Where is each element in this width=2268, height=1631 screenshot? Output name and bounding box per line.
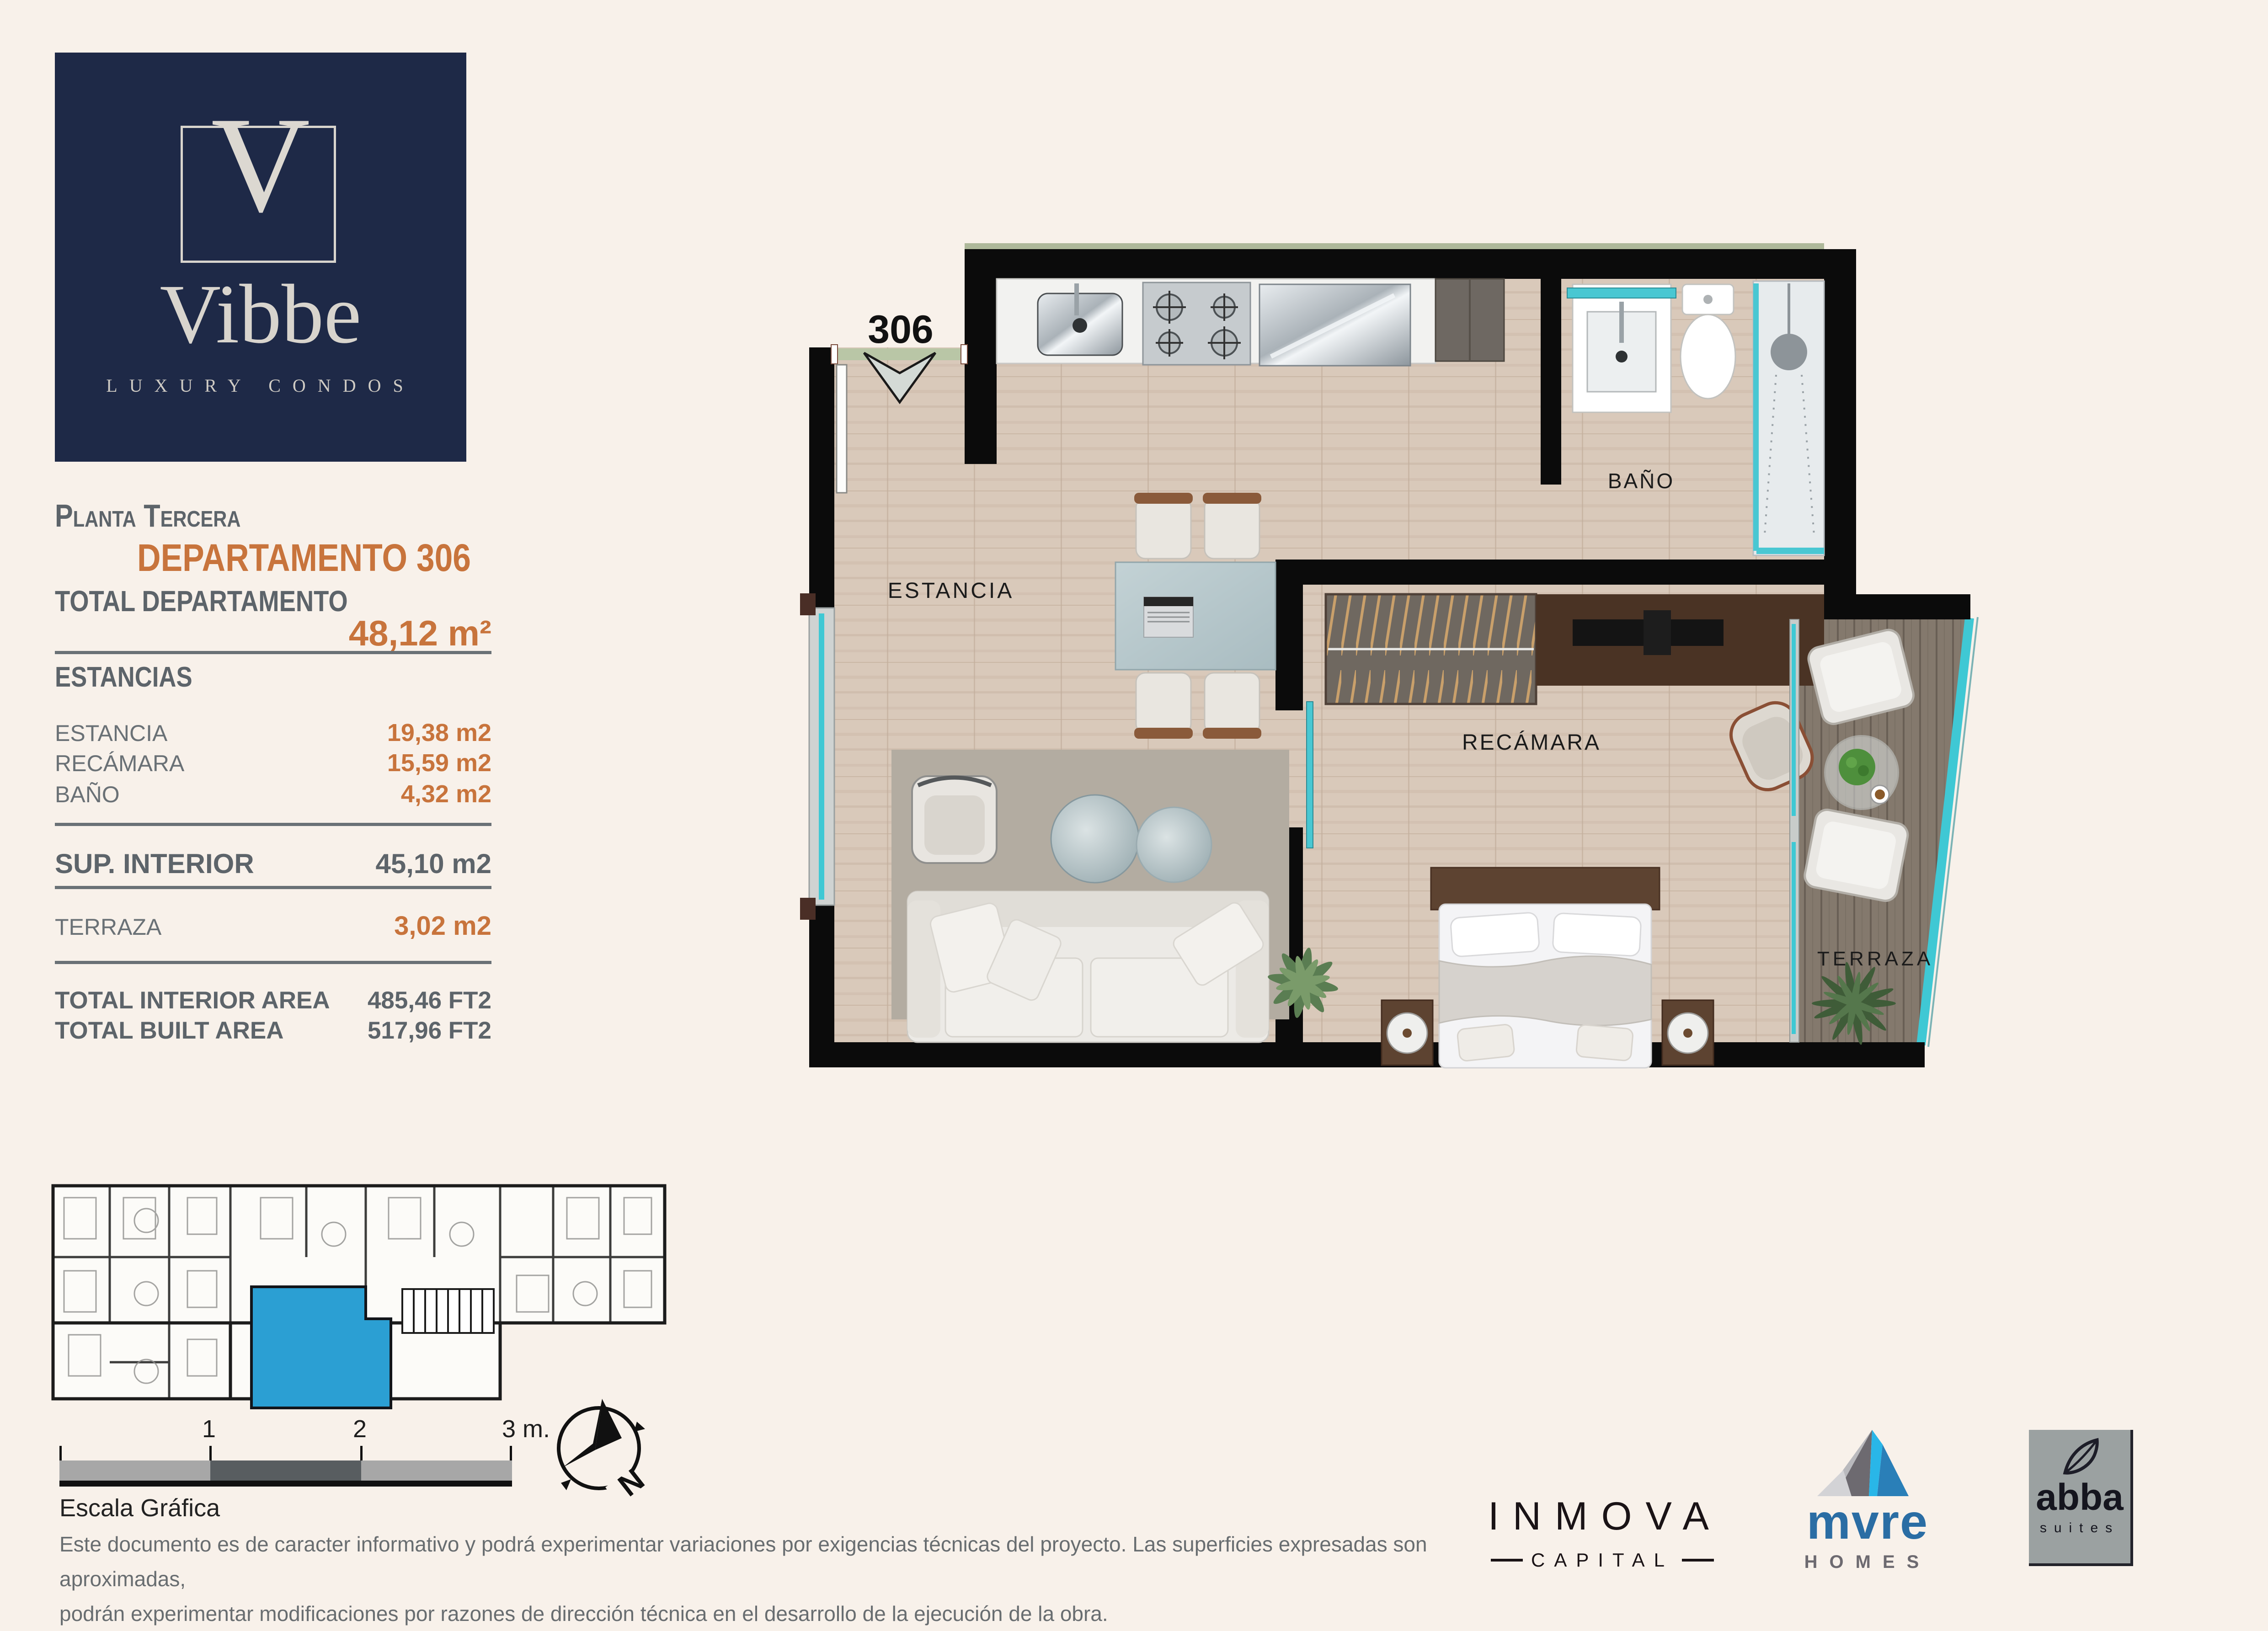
room-label: RECÁMARA <box>55 750 184 777</box>
bed <box>1431 868 1660 1068</box>
floorplan-306: BAÑO RECÁMARA <box>800 206 1989 1097</box>
blanket <box>1439 956 1651 1026</box>
scale-segment <box>135 1460 210 1481</box>
headboard <box>1431 868 1660 910</box>
dining-table <box>1115 562 1275 670</box>
faucet <box>1074 283 1079 315</box>
total-built-row: TOTAL BUILT AREA 517,96 FT2 <box>55 1017 491 1045</box>
inmova-sub-label: CAPITAL <box>1531 1549 1674 1571</box>
abba-wordmark: abba <box>2029 1479 2130 1516</box>
compass-icon: N <box>551 1393 651 1512</box>
terraza-value: 3,02 m2 <box>394 911 491 941</box>
entry-door-leaf <box>837 365 847 493</box>
room-label: ESTANCIA <box>55 720 167 746</box>
dash-rule <box>1682 1559 1714 1562</box>
bath-room-label: BAÑO <box>1608 469 1675 493</box>
mvre-wordmark: mvre <box>1797 1500 1938 1544</box>
armchair <box>912 776 997 863</box>
scale-segment <box>437 1460 512 1481</box>
room-value: 19,38 m2 <box>387 719 491 747</box>
scale-tick-label: 2 <box>353 1415 367 1443</box>
unit-title: DEPARTAMENTO 306 <box>137 536 471 580</box>
terrace-table <box>1825 736 1898 809</box>
sup-interior-label: SUP. INTERIOR <box>55 848 254 879</box>
abba-suites-label: suites <box>2029 1520 2130 1536</box>
overview-plan <box>50 1179 667 1415</box>
refrigerator <box>1259 284 1410 366</box>
total-interior-label: TOTAL INTERIOR AREA <box>55 986 330 1014</box>
logo-tagline: LUXURY CONDOS <box>55 375 466 396</box>
total-built-value: 517,96 FT2 <box>368 1017 491 1045</box>
shower <box>1753 281 1824 555</box>
facade-strip <box>965 243 1824 250</box>
inmova-capital-logo: INMOVA CAPITAL <box>1488 1494 1717 1571</box>
logo-monogram: V <box>55 96 466 233</box>
terrace-door-glass <box>1792 842 1796 1034</box>
scale-segment <box>59 1460 136 1481</box>
mvre-homes-label: HOMES <box>1797 1552 1938 1572</box>
overview-stairs <box>402 1289 494 1333</box>
inmova-wordmark: INMOVA <box>1488 1494 1717 1539</box>
sofa <box>907 891 1269 1042</box>
disclaimer-line-1: Este documento es de caracter informativ… <box>59 1527 1458 1596</box>
floor-title: Planta Tercera <box>55 497 426 534</box>
abba-leaf-icon <box>2057 1437 2103 1479</box>
terraza-row: TERRAZA 3,02 m2 <box>55 911 491 941</box>
disclaimer-line-2: podrán experimentar modificaciones por r… <box>59 1596 1458 1631</box>
bath-vanity <box>1567 284 1676 412</box>
sink-drain <box>1073 318 1087 333</box>
divider <box>55 961 491 964</box>
sections-heading: ESTANCIAS <box>55 661 426 693</box>
toilet <box>1681 284 1735 399</box>
room-row-recamara: RECÁMARA 15,59 m2 <box>55 749 491 777</box>
laptop <box>1144 597 1193 637</box>
terrace-door-glass <box>1792 624 1796 816</box>
sup-interior-row: SUP. INTERIOR 45,10 m2 <box>55 848 491 879</box>
total-interior-value: 485,46 FT2 <box>368 986 491 1014</box>
door-jamb <box>961 345 967 364</box>
coffee-table <box>1137 807 1211 882</box>
kitchen <box>997 279 1504 366</box>
living-window <box>800 593 834 920</box>
scale-tick-label: 1 <box>202 1415 216 1443</box>
room-row-bano: BAÑO 4,32 m2 <box>55 780 491 808</box>
coffee-table <box>1051 795 1139 883</box>
room-value: 15,59 m2 <box>387 749 491 777</box>
abba-suites-logo: abba suites <box>2029 1430 2133 1566</box>
disclaimer-text: Este documento es de caracter informativ… <box>59 1527 1458 1631</box>
total-built-label: TOTAL BUILT AREA <box>55 1017 284 1045</box>
terrace-room-label: TERRAZA <box>1817 948 1933 970</box>
room-value: 4,32 m2 <box>401 780 491 808</box>
scale-segment <box>210 1460 287 1481</box>
logo-name: Vibbe <box>55 272 466 357</box>
divider <box>55 823 491 826</box>
room-label: BAÑO <box>55 781 120 808</box>
dash-rule <box>1491 1559 1523 1562</box>
scale-baseline <box>59 1481 512 1487</box>
inmova-capital-line: CAPITAL <box>1488 1549 1717 1571</box>
sup-interior-value: 45,10 m2 <box>375 848 491 879</box>
total-departamento-value: 48,12 m² <box>55 613 491 654</box>
scale-caption: Escala Gráfica <box>59 1494 220 1522</box>
lounge-chair <box>1803 808 1910 903</box>
room-row-estancia: ESTANCIA 19,38 m2 <box>55 719 491 747</box>
total-interior-row: TOTAL INTERIOR AREA 485,46 FT2 <box>55 986 491 1014</box>
brand-card: V Vibbe LUXURY CONDOS <box>55 53 466 462</box>
bedroom-room-label: RECÁMARA <box>1462 730 1601 755</box>
mvre-homes-logo: mvre HOMES <box>1797 1425 1938 1572</box>
scale-segment <box>286 1460 361 1481</box>
divider <box>55 886 491 889</box>
stove <box>1143 282 1250 365</box>
divider <box>55 651 491 654</box>
scale-segment <box>361 1460 438 1481</box>
scale-tick-label: 3 m. <box>502 1415 550 1443</box>
closet <box>1326 594 1536 704</box>
living-room-label: ESTANCIA <box>888 579 1014 603</box>
door-jamb <box>831 345 838 364</box>
terraza-label: TERRAZA <box>55 914 161 940</box>
unit-number-label: 306 <box>868 308 934 352</box>
mvre-mountain-icon <box>1815 1425 1920 1498</box>
media-console <box>1536 594 1824 686</box>
bedroom-sliding-glass-door <box>1307 702 1313 848</box>
